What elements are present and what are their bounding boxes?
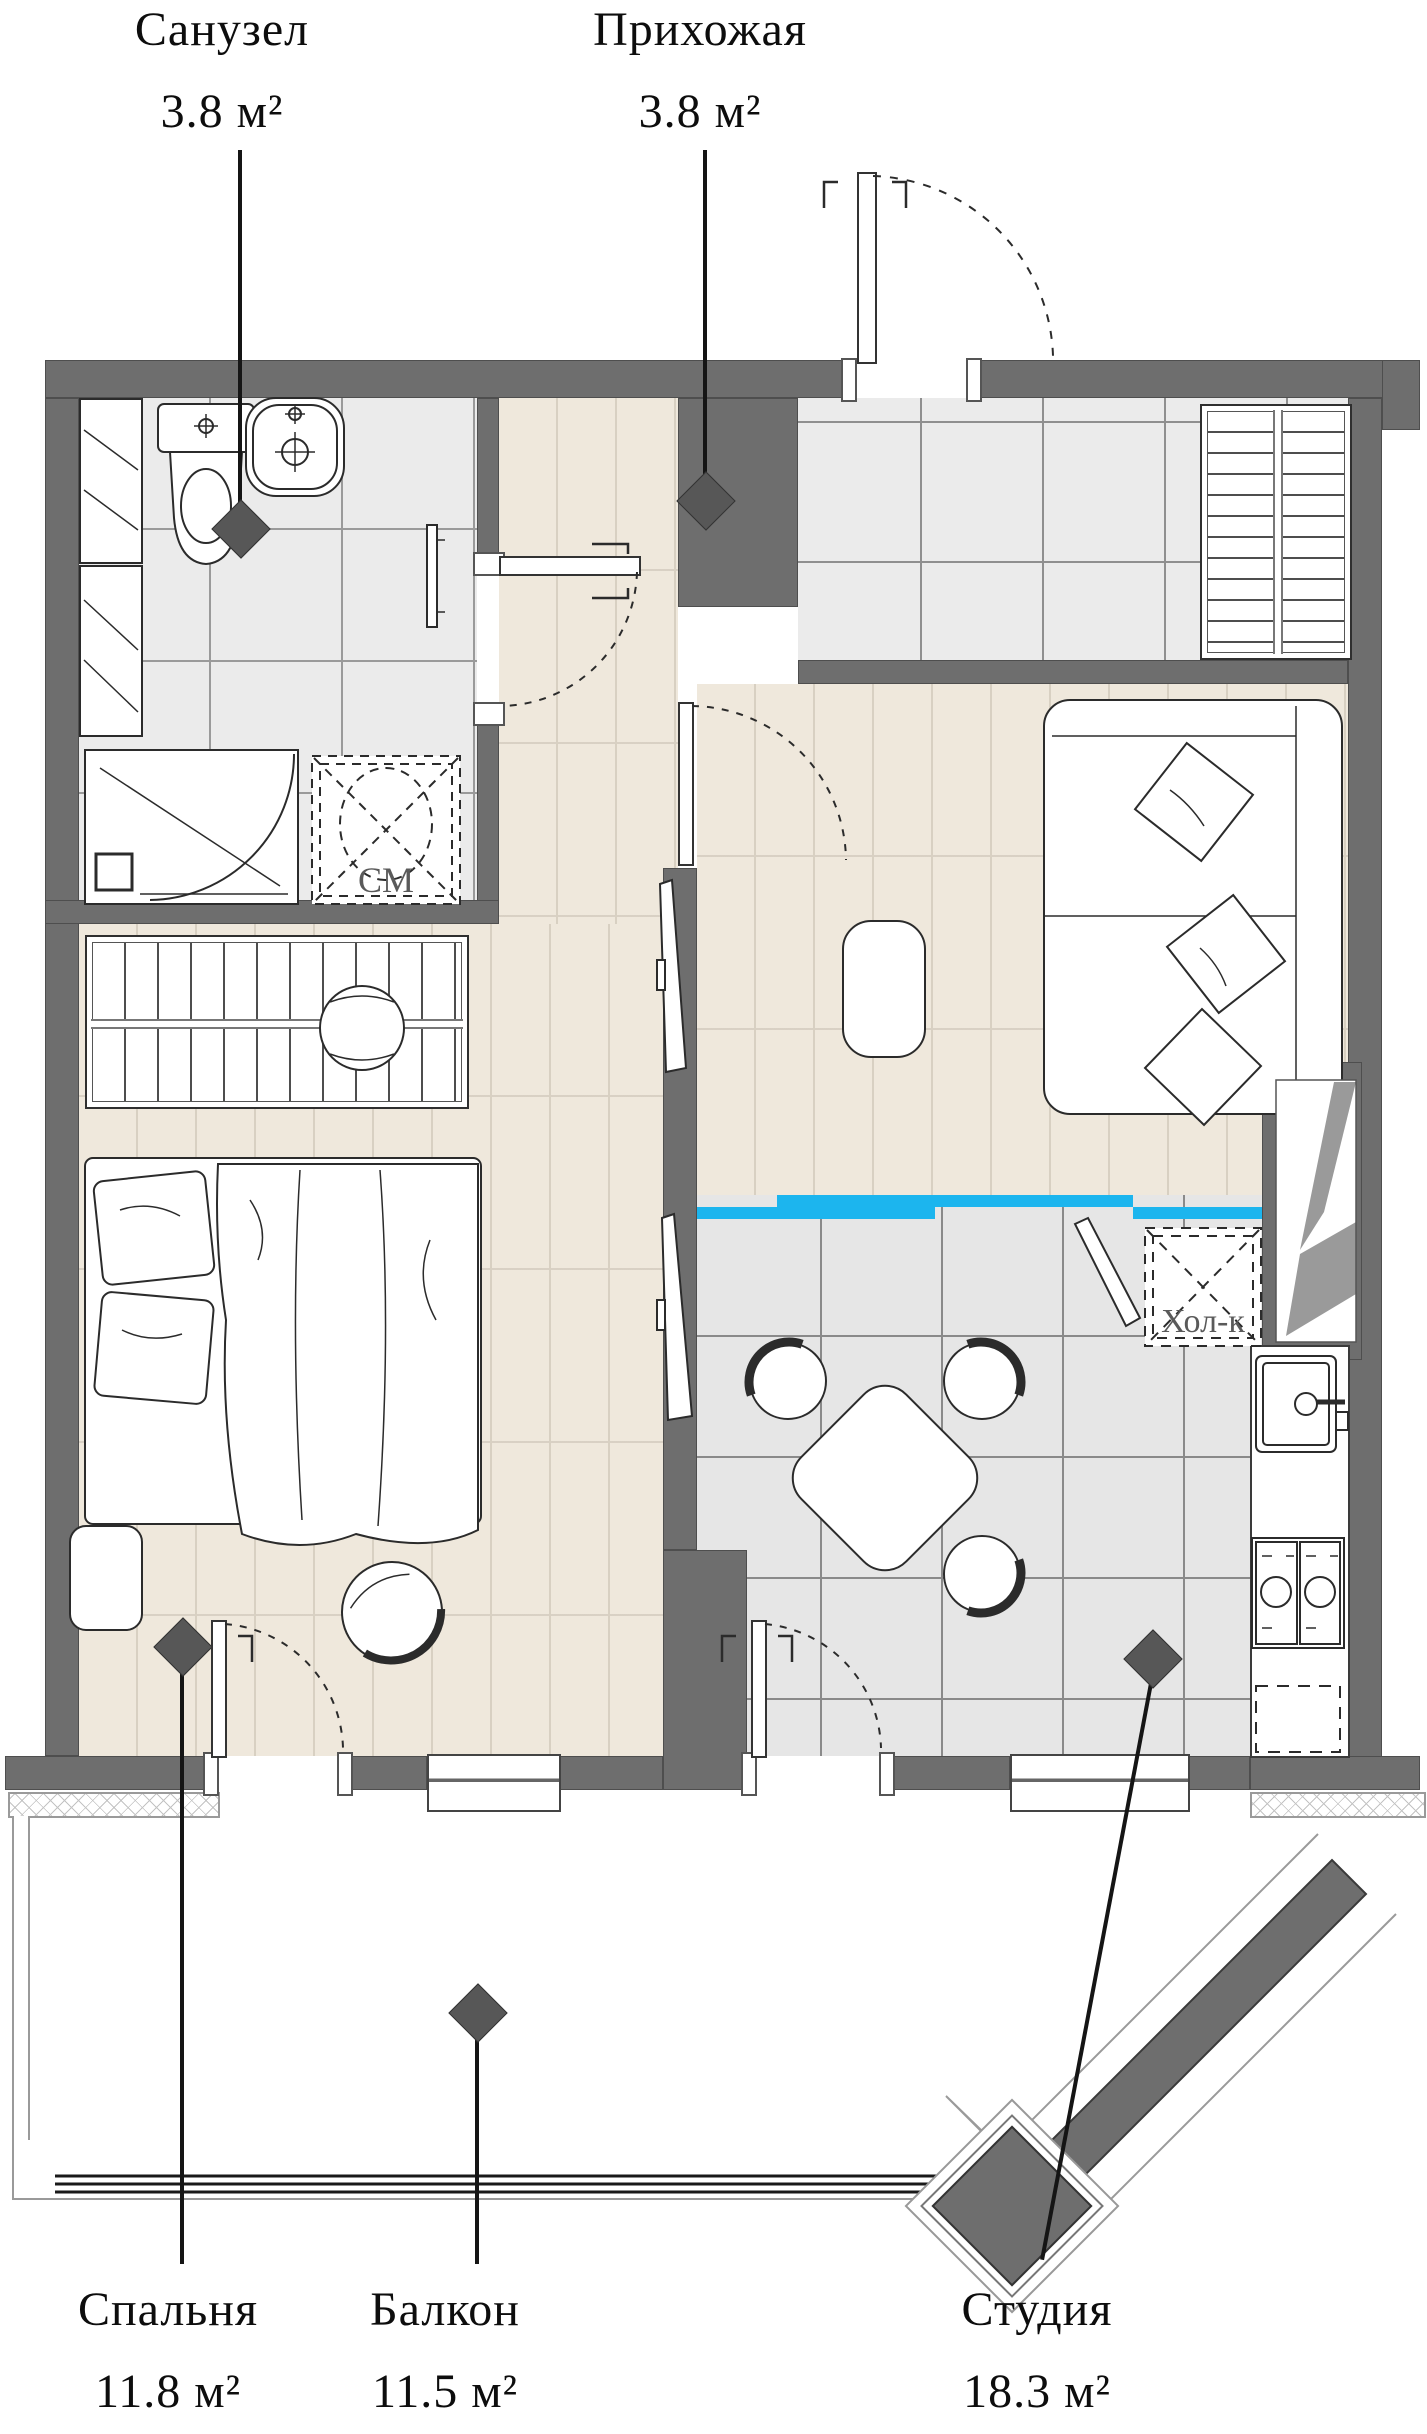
bed-blanket (217, 1164, 478, 1545)
bathroom-label: Санузел (135, 2, 309, 57)
floor-plan: Санузел 3.8 м² Прихожая 3.8 м² Спальня 1… (0, 0, 1427, 2434)
bed (85, 1158, 481, 1545)
balcony-area: 11.5 м² (372, 2364, 518, 2419)
bedroom-balcony-door-arc (225, 1624, 343, 1748)
leader-balcony (475, 2032, 479, 2264)
towel-rail (427, 525, 445, 627)
bedroom-label: Спальня (78, 2282, 258, 2337)
studio-label: Студия (962, 2282, 1113, 2337)
leader-bathroom (238, 150, 242, 520)
curtain-niche (1276, 1080, 1356, 1342)
bench (70, 1526, 142, 1630)
tv-panel (657, 880, 692, 1420)
entry-door-arc (873, 176, 1053, 356)
hallway-label: Прихожая (593, 2, 807, 57)
bathroom-shelf-unit (80, 399, 142, 736)
balcony-railing (55, 2176, 1006, 2192)
dining-chair (928, 1520, 1036, 1628)
dishwasher (1256, 1686, 1340, 1752)
balcony-diagonal-wall (1026, 1860, 1366, 2200)
stove (1252, 1538, 1344, 1648)
balcony-label: Балкон (370, 2282, 520, 2337)
leader-hallway (703, 150, 707, 486)
kitchen-balcony-door-arc (765, 1624, 881, 1748)
washing-machine-label: СМ (358, 859, 414, 901)
hallway-area: 3.8 м² (639, 84, 762, 139)
pouf (320, 986, 404, 1070)
dining-chair (734, 1327, 842, 1435)
coffee-table (843, 921, 925, 1057)
studio-area: 18.3 м² (963, 2364, 1111, 2419)
leader-bedroom (180, 1664, 184, 2264)
bathroom-sink (246, 398, 344, 496)
armchair (324, 1544, 461, 1681)
bathroom-area: 3.8 м² (161, 84, 284, 139)
dining-chair (928, 1327, 1036, 1435)
bedroom-area: 11.8 м² (95, 2364, 241, 2419)
sofa (1044, 700, 1342, 1125)
kitchen-sink (1256, 1356, 1348, 1452)
bedroom-door-arc (692, 706, 846, 860)
bathroom-door-arc (503, 572, 637, 706)
shower (85, 750, 298, 904)
refrigerator-label: Хол-к (1161, 1303, 1245, 1341)
furniture-layer (0, 0, 1427, 2434)
